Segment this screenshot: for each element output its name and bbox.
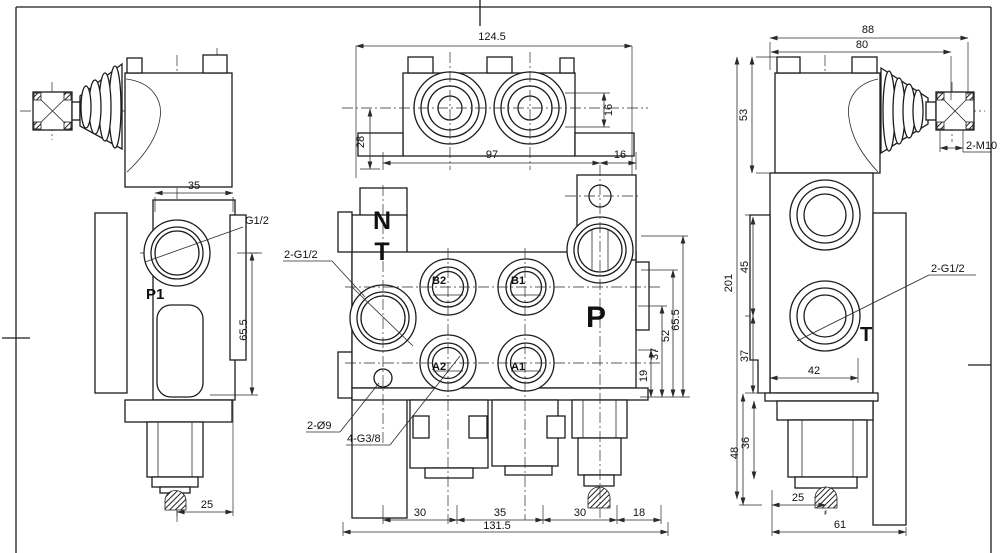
front-label-n: N: [373, 207, 391, 235]
right-label-t: T: [860, 324, 872, 346]
right-view-geometry: [737, 38, 991, 536]
front-dim-18: 18: [633, 507, 645, 519]
right-dim-25: 25: [792, 492, 804, 504]
front-label-p: P: [586, 301, 606, 334]
front-dim-131-5: 131.5: [483, 520, 511, 532]
left-label-g12: G1/2: [245, 215, 269, 227]
right-dim-80: 80: [856, 39, 868, 51]
right-dim-88: 88: [862, 24, 874, 36]
front-dim-30a: 30: [414, 507, 426, 519]
right-dim-53: 53: [738, 109, 750, 121]
left-dim-25: 25: [201, 499, 213, 511]
valve-drawing: 35 65.5 25 P1 G1/2 124.5: [0, 0, 1000, 553]
front-label-work-ports: 4-G3/8: [347, 433, 381, 445]
front-label-holes: 2-Ø9: [307, 420, 331, 432]
right-dim-42: 42: [808, 365, 820, 377]
front-dim-37: 37: [649, 348, 661, 360]
right-dim-36: 36: [740, 437, 752, 449]
right-label-ports: 2-G1/2: [931, 263, 965, 275]
left-dim-35: 35: [188, 180, 200, 192]
left-view-geometry: [20, 48, 262, 524]
front-dim-16-bottom: 16: [614, 149, 626, 161]
left-label-p1: P1: [146, 286, 164, 303]
front-label-b2: B2: [432, 275, 446, 287]
front-dim-97: 97: [486, 149, 498, 161]
right-dim-201: 201: [723, 274, 735, 292]
right-label-studs: 2-M10: [966, 140, 997, 152]
right-dim-37: 37: [739, 350, 751, 362]
front-view-geometry: [283, 165, 690, 536]
front-dim-30b: 30: [574, 507, 586, 519]
front-dim-19: 19: [638, 370, 650, 382]
front-dim-16-side: 16: [603, 104, 615, 116]
front-dim-28: 28: [355, 136, 367, 148]
front-dim-35: 35: [494, 507, 506, 519]
right-dim-61: 61: [834, 519, 846, 531]
front-label-t: T: [374, 238, 389, 266]
front-label-a1: A1: [511, 361, 525, 373]
front-dim-65-5: 65.5: [670, 309, 682, 330]
right-dim-45: 45: [739, 261, 751, 273]
left-dim-65-5: 65.5: [238, 319, 250, 340]
front-label-inlet: 2-G1/2: [284, 249, 318, 261]
drawing-sheet: 35 65.5 25 P1 G1/2 124.5: [0, 0, 1000, 553]
front-dim-52: 52: [660, 330, 672, 342]
front-label-a2: A2: [432, 361, 446, 373]
front-label-b1: B1: [511, 275, 525, 287]
front-dim-124-5: 124.5: [478, 31, 506, 43]
